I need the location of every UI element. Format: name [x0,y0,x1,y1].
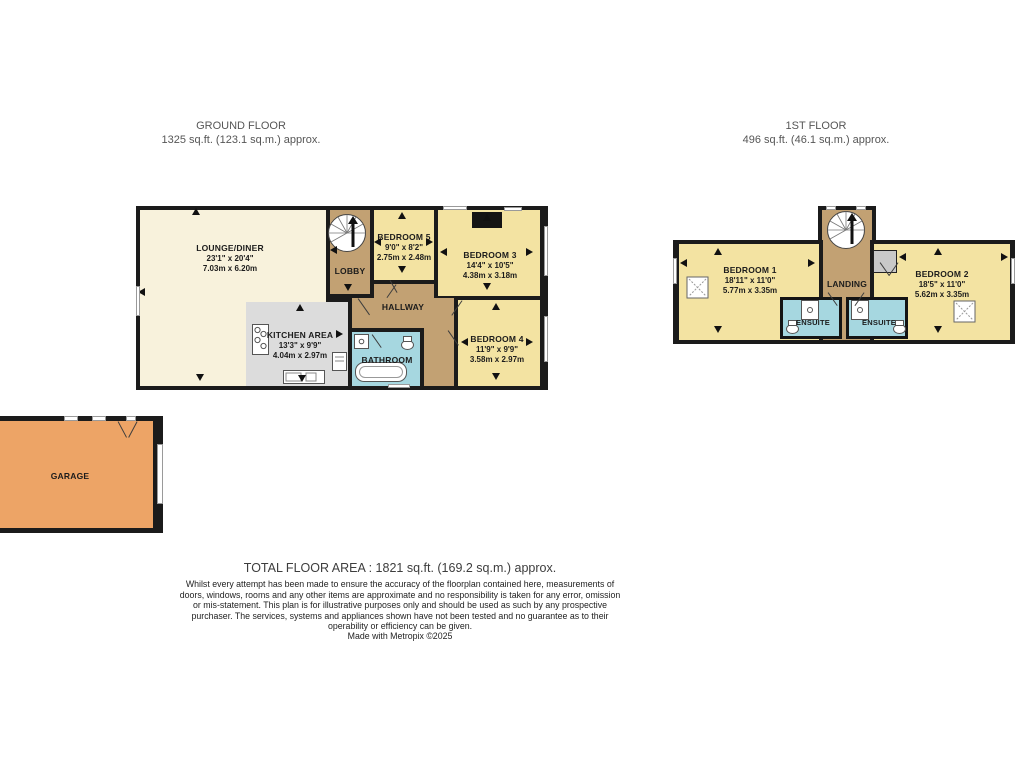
ground-floor-title: GROUND FLOOR 1325 sq.ft. (123.1 sq.m.) a… [162,119,321,147]
room-label-ensuite-left: ENSUITE [796,317,830,328]
first-floor-title-line: 1ST FLOOR [743,119,890,133]
hallway-lower-section [424,328,454,386]
window-gap [157,444,163,504]
measure-arrow-icon [483,283,491,290]
window-gap [856,206,866,210]
total-floor-area: TOTAL FLOOR AREA : 1821 sq.ft. (169.2 sq… [244,561,556,575]
measure-arrow-icon [296,304,304,311]
measure-arrow-icon [398,266,406,273]
measure-arrow-icon [714,326,722,333]
appliance-icon [332,352,347,371]
hallway-upper-section [374,284,434,298]
room-label-ensuite-right: ENSUITE [862,317,896,328]
measure-arrow-icon [492,373,500,380]
room-label-landing: LANDING [827,279,867,290]
room-label-bedroom-2: BEDROOM 2 18'5" x 11'0" 5.62m x 3.35m [915,269,969,300]
disclaimer-text: Whilst every attempt has been made to en… [179,579,621,632]
measure-arrow-icon [899,253,906,261]
room-label-lounge: LOUNGE/DINER 23'1" x 20'4" 7.03m x 6.20m [196,243,264,274]
room-label-bedroom-5: BEDROOM 5 9'0" x 8'2" 2.75m x 2.48m [377,232,431,263]
window-gap [544,226,548,276]
room-label-lobby: LOBBY [335,266,366,277]
measure-arrow-icon [492,303,500,310]
window-gap [504,207,522,211]
spiral-staircase-icon [826,210,866,250]
measure-arrow-icon [298,375,306,382]
shower-icon [354,334,369,349]
room-label-bedroom-4: BEDROOM 4 11'9" x 9'9" 3.58m x 2.97m [470,334,524,365]
skylight-icon [953,300,976,323]
window-gap [64,416,78,421]
floorplan-canvas: GROUND FLOOR 1325 sq.ft. (123.1 sq.m.) a… [0,0,1024,768]
window-gap [826,206,836,210]
window-gap [136,286,140,316]
measure-arrow-icon [440,248,447,256]
measure-arrow-icon [398,212,406,219]
measure-arrow-icon [461,338,468,346]
measure-arrow-icon [934,248,942,255]
measure-arrow-icon [526,248,533,256]
window-gap [388,384,410,388]
room-label-bedroom-1: BEDROOM 1 18'11" x 11'0" 5.77m x 3.35m [723,265,777,296]
measure-arrow-icon [808,259,815,267]
measure-arrow-icon [1001,253,1008,261]
room-label-bathroom: BATHROOM [361,355,412,366]
skylight-icon [686,276,709,299]
measure-arrow-icon [196,374,204,381]
window-gap [443,206,467,210]
measure-arrow-icon [714,248,722,255]
measure-arrow-icon [336,330,343,338]
measure-arrow-icon [483,214,491,221]
measure-arrow-icon [934,326,942,333]
toilet-icon [401,340,414,350]
measure-arrow-icon [426,238,433,246]
measure-arrow-icon [374,238,381,246]
measure-arrow-icon [330,246,337,254]
measure-arrow-icon [344,284,352,291]
window-gap [673,258,677,284]
window-gap [1011,258,1015,284]
credit-text: Made with Metropix ©2025 [348,631,453,641]
ground-floor-area: 1325 sq.ft. (123.1 sq.m.) approx. [162,133,321,147]
measure-arrow-icon [192,208,200,215]
room-label-hallway: HALLWAY [382,302,424,313]
ground-floor-title-line: GROUND FLOOR [162,119,321,133]
room-label-bedroom-3: BEDROOM 3 14'4" x 10'5" 4.38m x 3.18m [463,250,517,281]
first-floor-area: 496 sq.ft. (46.1 sq.m.) approx. [743,133,890,147]
measure-arrow-icon [680,259,687,267]
window-gap [126,416,136,421]
first-floor-title: 1ST FLOOR 496 sq.ft. (46.1 sq.m.) approx… [743,119,890,147]
measure-arrow-icon [526,338,533,346]
room-label-kitchen: KITCHEN AREA 13'3" x 9'9" 4.04m x 2.97m [267,330,333,361]
window-gap [544,316,548,362]
window-gap [92,416,106,421]
room-label-garage: GARAGE [51,471,90,482]
